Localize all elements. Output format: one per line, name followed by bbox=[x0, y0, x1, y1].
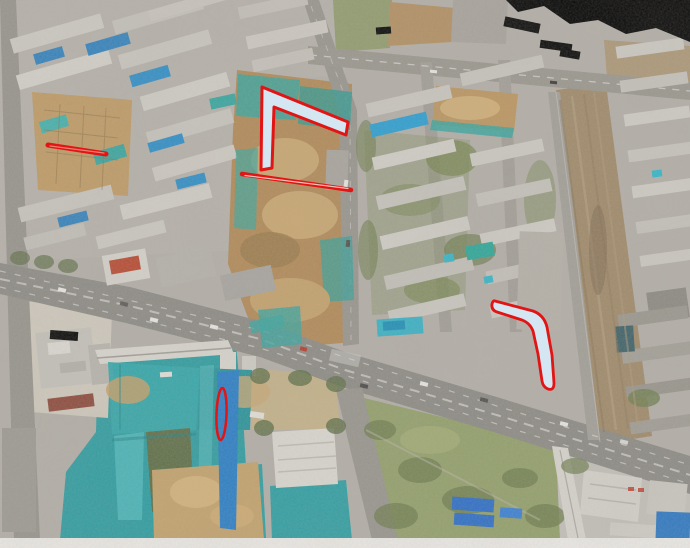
photo-blotch-overlay bbox=[0, 0, 690, 548]
aerial-orthophoto-screenshot bbox=[0, 0, 690, 548]
orthophoto-canvas bbox=[0, 0, 690, 548]
